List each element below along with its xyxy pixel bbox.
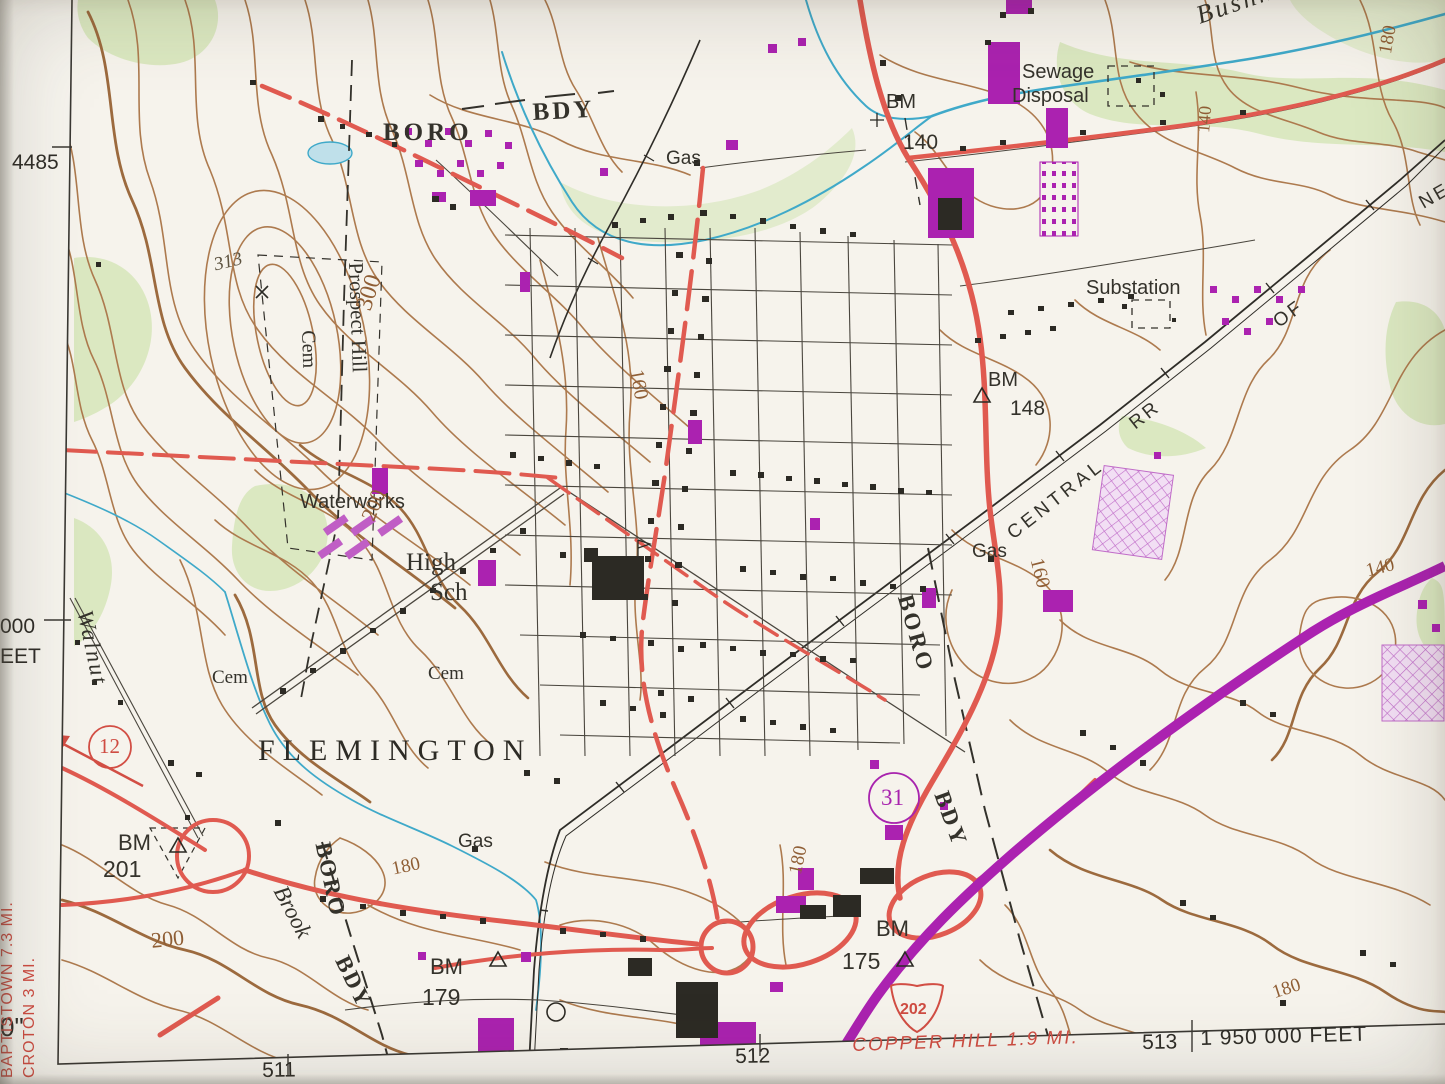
sewage-disposal-label: Sewage <box>1022 62 1094 82</box>
bdy-label-top: BDY <box>532 97 595 125</box>
benchmark-elevation: 148 <box>1010 398 1045 419</box>
high-school-label: High <box>406 550 456 575</box>
benchmark-label: BM <box>988 370 1018 390</box>
destination-baptistown: BAPTISTOWN 7.3 MI. <box>0 901 16 1078</box>
pond <box>308 142 352 164</box>
contour-label-180: 180 <box>1376 24 1400 55</box>
map-canvas <box>0 0 1445 1084</box>
grid-label-513: 513 <box>1142 1031 1177 1053</box>
boro-label-top: BORO <box>383 120 473 145</box>
sewage-disposal-label2: Disposal <box>1012 86 1089 106</box>
urban-crosshatch-area-2 <box>1382 645 1444 721</box>
benchmark-label: BM <box>118 832 151 854</box>
topo-map-photo: Bushkill Sewage Disposal BM 140 BORO BDY… <box>0 0 1445 1084</box>
route-31-number: 31 <box>881 786 904 809</box>
gas-label-bottom: Gas <box>458 832 493 851</box>
route-12-number: 12 <box>99 736 120 757</box>
benchmark-elevation: 140 <box>903 132 938 153</box>
substation-label: Substation <box>1086 278 1181 298</box>
gas-label-mid: Gas <box>972 542 1007 561</box>
benchmark-label: BM <box>430 956 463 978</box>
urban-crosshatch-area <box>1092 466 1173 560</box>
benchmark-elevation: 175 <box>842 950 880 973</box>
cemetery-label-east: Cem <box>428 664 464 683</box>
contour-label-160: 160 <box>626 368 651 401</box>
grid-label-feet-partial: EET <box>0 646 41 667</box>
benchmark-elevation: 179 <box>422 986 460 1009</box>
cemetery-label-west: Cem <box>212 668 248 687</box>
benchmark-elevation: 201 <box>103 858 141 881</box>
grid-label-512: 512 <box>735 1045 770 1067</box>
high-school-building <box>592 556 644 600</box>
high-school-label2: Sch <box>430 580 468 605</box>
contour-label-200: 200 <box>150 927 185 952</box>
grid-label-4485: 4485 <box>12 152 59 173</box>
destination-croton: CROTON 3 MI. <box>22 957 38 1078</box>
grid-label-1950000-feet: 1 950 000 FEET <box>1200 1024 1367 1049</box>
grid-label-000: 000 <box>0 616 35 637</box>
cemetery-label: Cem <box>298 330 319 368</box>
contour-label-140: 140 <box>1194 105 1214 133</box>
grid-label-511: 511 <box>262 1059 296 1081</box>
route-202-number: 202 <box>900 1002 927 1018</box>
benchmark-label: BM <box>886 92 916 112</box>
large-black-building <box>676 982 718 1038</box>
gas-label-top: Gas <box>666 149 701 168</box>
benchmark-label: BM <box>876 918 909 940</box>
place-name-flemington: FLEMINGTON <box>258 736 532 766</box>
